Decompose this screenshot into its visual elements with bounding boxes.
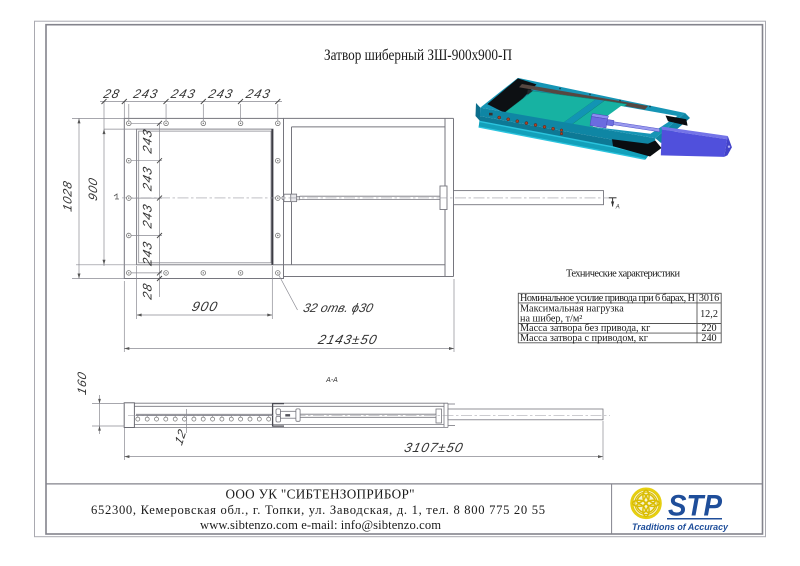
svg-text:12,2: 12,2 [700, 309, 718, 320]
svg-text:Масса затвора с приводом, кг: Масса затвора с приводом, кг [520, 333, 648, 344]
svg-text:Затвор шиберный ЗШ-900х900-П: Затвор шиберный ЗШ-900х900-П [324, 47, 512, 64]
svg-text:32 отв. ɸ30: 32 отв. ɸ30 [302, 301, 375, 315]
svg-text:160: 160 [75, 370, 89, 396]
svg-text:900: 900 [86, 176, 100, 202]
svg-text:243: 243 [141, 202, 155, 230]
svg-text:240: 240 [701, 333, 716, 344]
svg-text:243: 243 [206, 87, 235, 101]
svg-text:243: 243 [131, 87, 160, 101]
svg-text:243: 243 [244, 87, 273, 101]
svg-text:Traditions of Accuracy: Traditions of Accuracy [632, 522, 729, 532]
svg-text:А: А [615, 204, 620, 210]
svg-text:243: 243 [141, 127, 155, 155]
svg-text:2143±50: 2143±50 [316, 332, 380, 347]
svg-text:STP: STP [668, 490, 723, 523]
svg-text:1028: 1028 [61, 179, 75, 213]
svg-text:243: 243 [141, 165, 155, 193]
svg-text:243: 243 [169, 87, 198, 101]
svg-text:28: 28 [141, 281, 155, 301]
svg-text:ООО УК "СИБТЕНЗОПРИБОР": ООО УК "СИБТЕНЗОПРИБОР" [226, 487, 415, 502]
svg-text:652300, Кемеровская обл., г. Т: 652300, Кемеровская обл., г. Топки, ул. … [91, 503, 545, 517]
svg-text:www.sibtenzo.com e-mail: info@: www.sibtenzo.com e-mail: info@sibtenzo.c… [200, 518, 441, 532]
svg-text:900: 900 [190, 299, 220, 314]
svg-text:3016: 3016 [699, 293, 719, 304]
svg-text:Технические характеристики: Технические характеристики [566, 269, 680, 280]
svg-text:3107±50: 3107±50 [403, 440, 466, 455]
svg-text:Номинальное усилие привода при: Номинальное усилие привода при 6 барах, … [520, 293, 696, 304]
svg-text:243: 243 [141, 240, 155, 268]
svg-text:28: 28 [101, 87, 122, 101]
svg-text:А-А: А-А [325, 377, 338, 384]
